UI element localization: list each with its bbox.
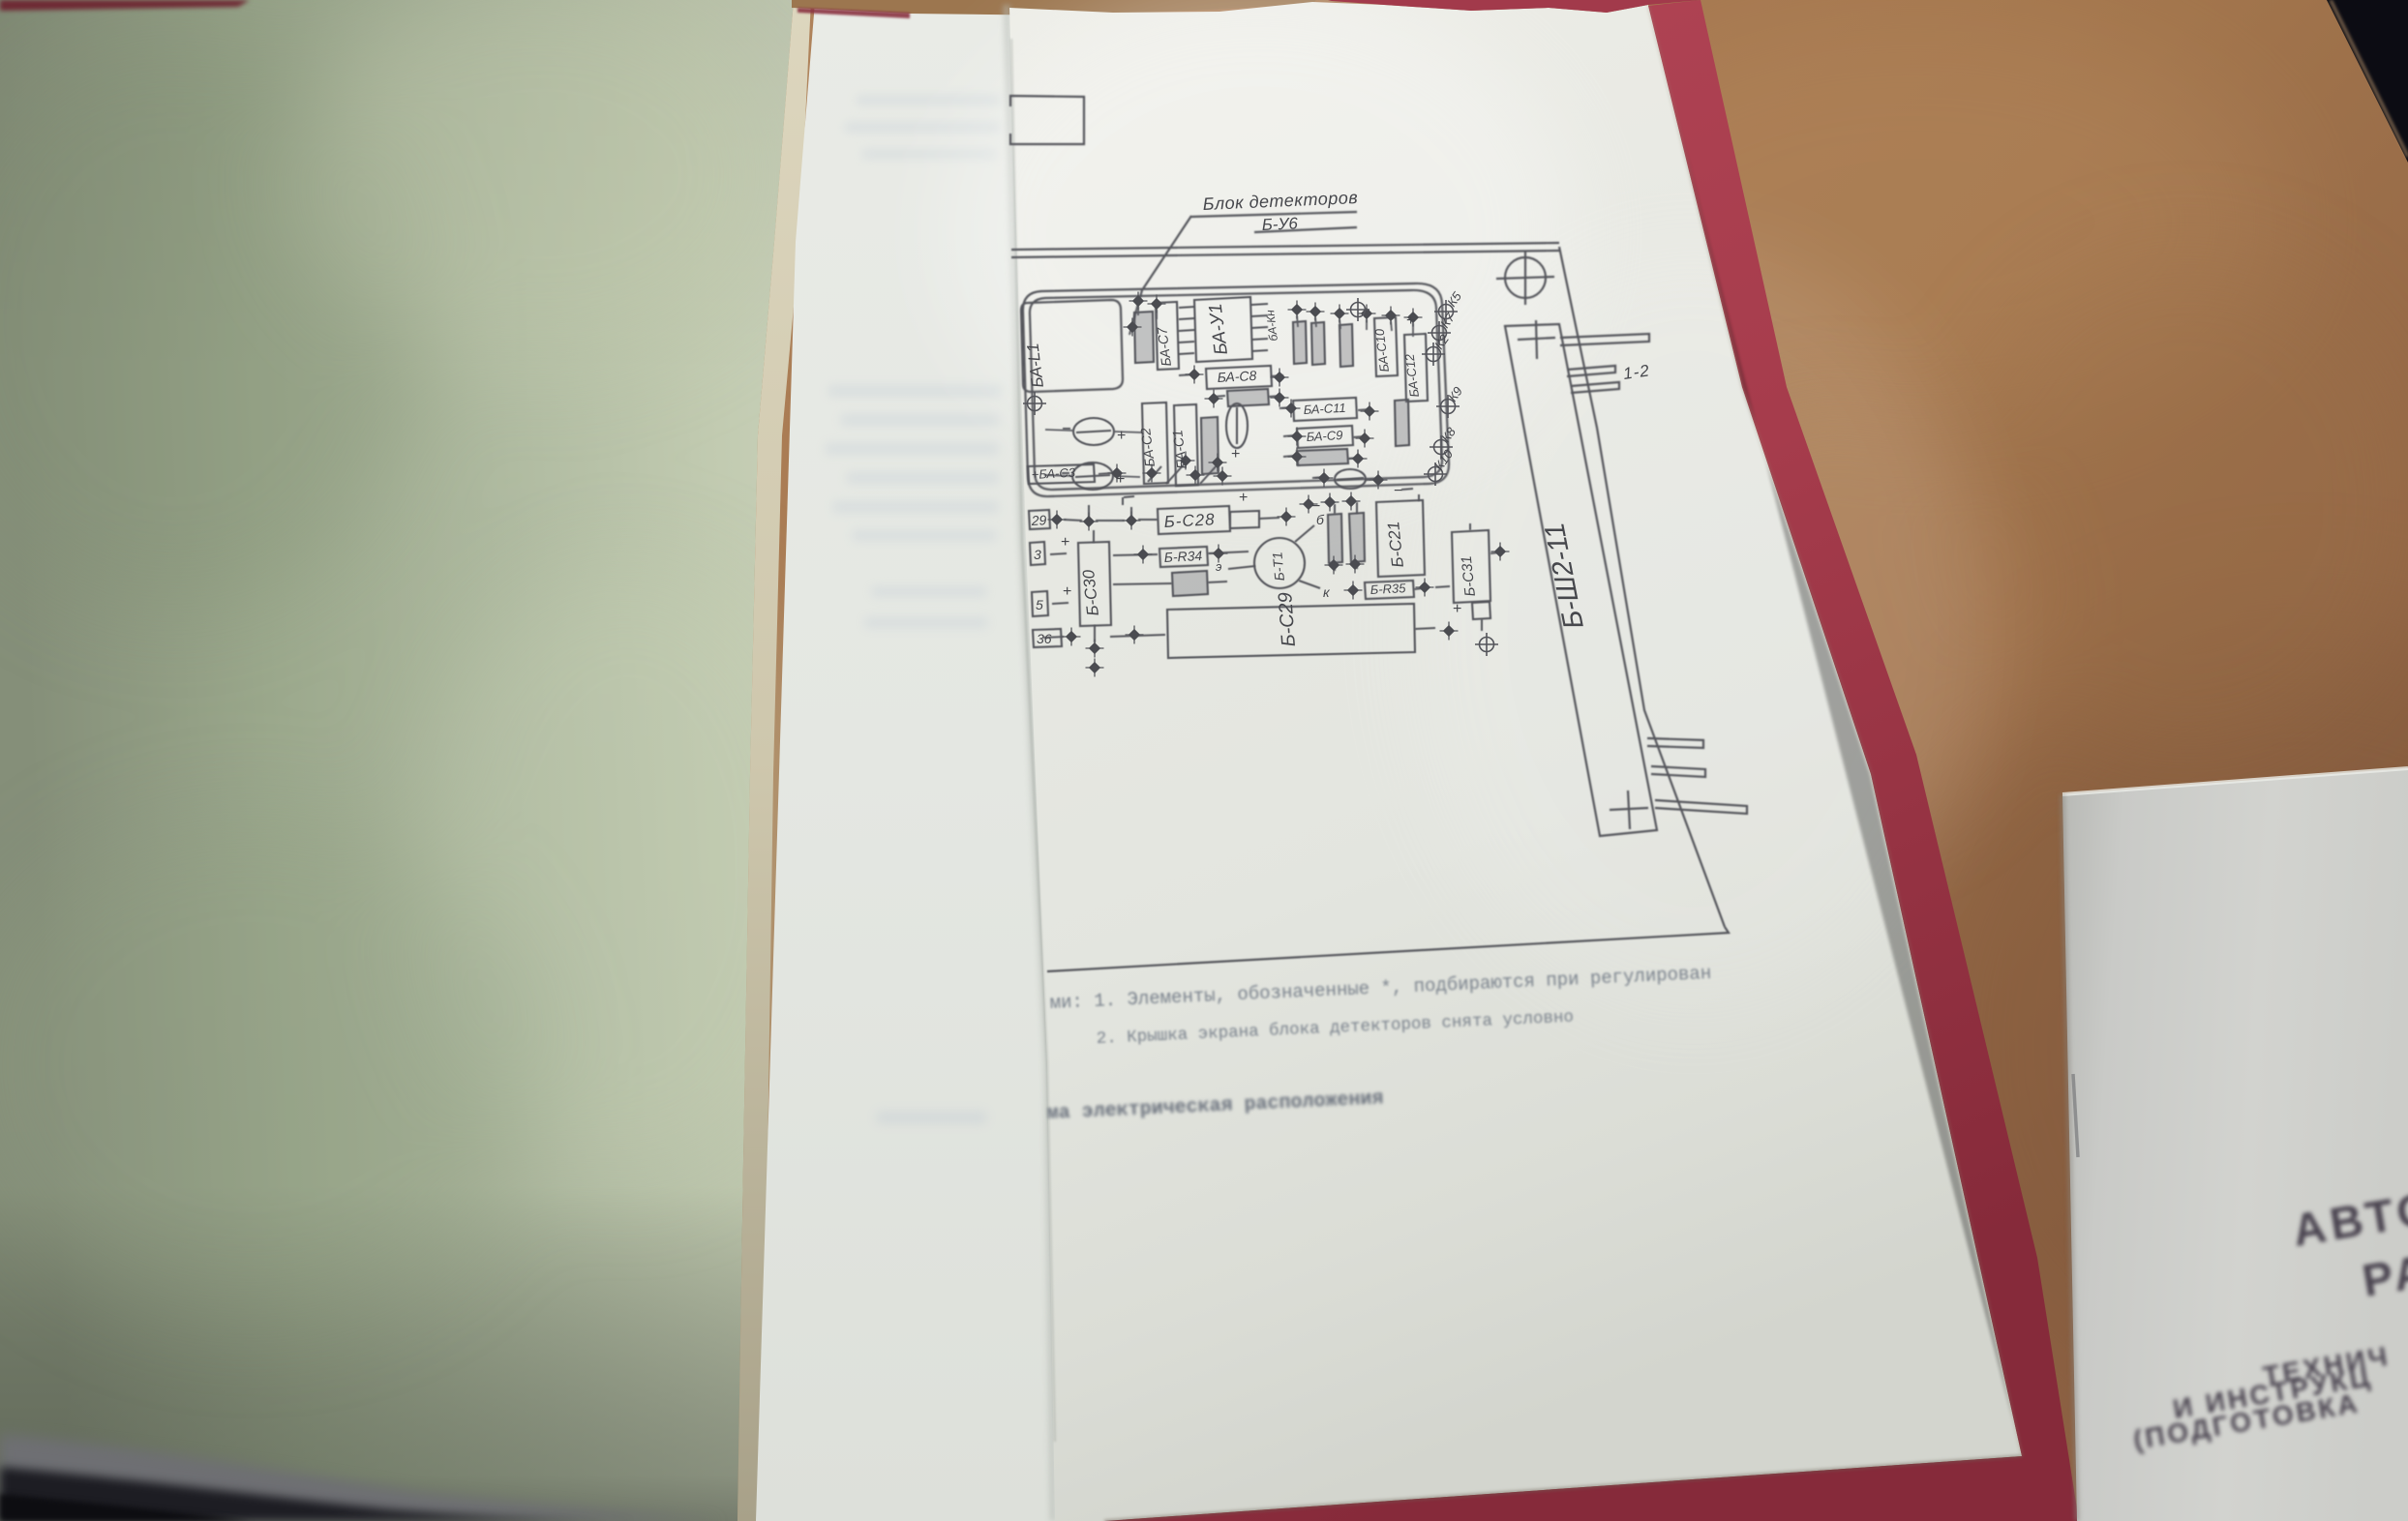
svg-text:Б-R34: Б-R34: [1163, 548, 1202, 565]
svg-text:Б-С29: Б-С29: [1275, 591, 1300, 647]
svg-text:БА-С8: БА-С8: [1217, 368, 1257, 385]
svg-text:+: +: [1406, 313, 1415, 329]
svg-text:Б-С28: Б-С28: [1163, 510, 1216, 531]
svg-text:+: +: [1231, 446, 1240, 462]
svg-text:Б-У6: Б-У6: [1261, 214, 1298, 234]
svg-text:5: 5: [1036, 597, 1043, 612]
svg-text:БА-С9: БА-С9: [1306, 428, 1342, 444]
svg-text:э: э: [1216, 559, 1221, 574]
svg-text:+: +: [1116, 471, 1125, 488]
svg-text:3: 3: [1034, 547, 1041, 562]
svg-text:Б-R35: Б-R35: [1370, 581, 1406, 597]
svg-text:1-2: 1-2: [1622, 361, 1651, 383]
svg-text:+: +: [1239, 490, 1248, 506]
svg-text:36: 36: [1037, 631, 1052, 646]
svg-text:БА-С11: БА-С11: [1303, 401, 1346, 417]
svg-text:29: 29: [1030, 512, 1047, 528]
svg-text:+: +: [1061, 534, 1069, 551]
svg-text:−: −: [1311, 498, 1320, 515]
svg-text:+: +: [1453, 601, 1461, 617]
svg-text:+: +: [1117, 428, 1126, 444]
svg-text:+БА-С3: +БА-С3: [1031, 465, 1076, 482]
svg-text:−: −: [1394, 483, 1402, 499]
svg-text:+: +: [1063, 583, 1071, 600]
svg-text:Б-Т1: Б-Т1: [1269, 552, 1287, 582]
